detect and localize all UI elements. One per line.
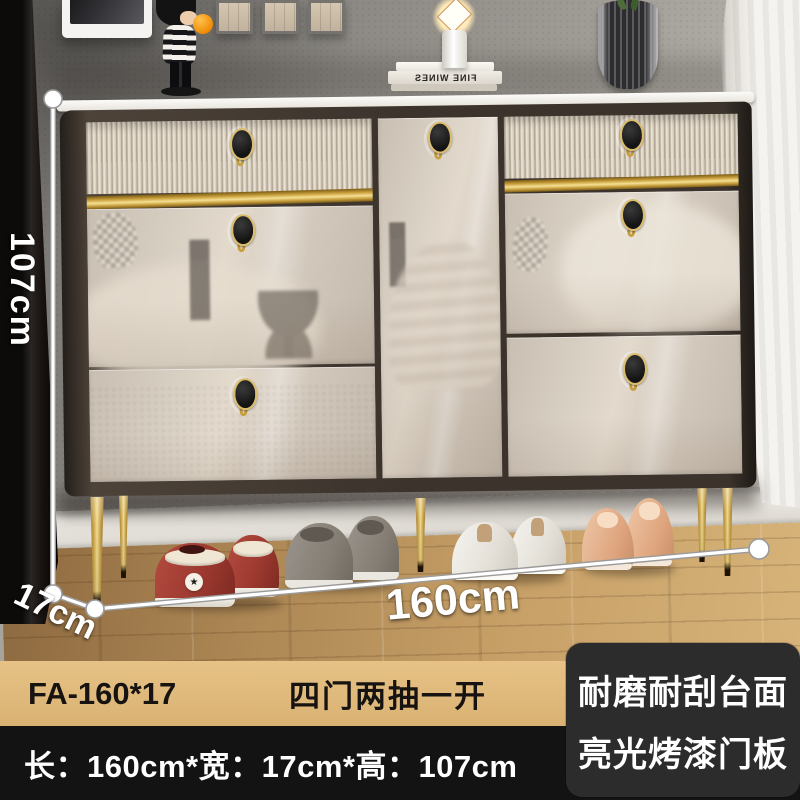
wall-switch-panels	[216, 0, 346, 35]
gray-sneakers	[285, 516, 399, 588]
shoe-cabinet	[59, 91, 756, 496]
handle-ring	[626, 146, 634, 157]
product-image: FINE WINES	[0, 0, 800, 800]
pink-shoes	[582, 498, 676, 572]
vase-leaves	[612, 0, 646, 8]
gray-sneaker	[345, 516, 399, 580]
cabinet-middle-door	[378, 117, 503, 479]
reflection-pillow	[91, 211, 140, 271]
red-sneakers: ★	[155, 535, 283, 607]
reflection-figure	[389, 222, 406, 288]
book: FINE WINES	[388, 71, 502, 84]
cabinet-left-section	[86, 118, 377, 482]
book	[391, 84, 497, 91]
configuration-label: 四门两抽一开	[289, 671, 487, 716]
switch-panel	[308, 0, 345, 34]
reflection-pillow	[511, 216, 551, 273]
middle-door-panel[interactable]	[378, 117, 503, 479]
star-icon: ★	[190, 577, 199, 588]
size-text: 长：160cm*宽：17cm*高：107cm	[24, 741, 517, 786]
handle-ring	[236, 155, 244, 166]
handle-ring	[629, 380, 637, 391]
door-handle[interactable]	[226, 212, 257, 256]
reflection-sofa	[86, 262, 321, 383]
white-sneaker	[510, 516, 566, 574]
figurine-legs	[170, 62, 191, 88]
switch-panel	[216, 0, 253, 34]
handle-ring	[237, 241, 245, 252]
cabinet-right-section	[504, 114, 743, 477]
figurine-base	[161, 87, 201, 96]
reflection-figure	[189, 240, 210, 322]
switch-panel	[262, 0, 299, 34]
reflection-bench	[387, 239, 501, 390]
feature-badge: 耐磨耐刮台面 亮光烤漆门板	[566, 643, 800, 797]
figurine-striped-body	[162, 24, 196, 64]
reflection-table	[240, 290, 337, 359]
model-number: FA-160*17	[28, 676, 176, 712]
lamp-base	[442, 30, 467, 68]
boy-figurine	[150, 0, 214, 97]
orange-ball	[193, 14, 213, 34]
handle-ring	[627, 226, 635, 237]
product-photo: FINE WINES	[0, 0, 800, 661]
reflection-sofa	[561, 201, 743, 331]
door-handle[interactable]	[615, 117, 646, 161]
pink-shoe	[582, 508, 634, 570]
handle-ring	[239, 405, 247, 416]
table-lamp	[430, 0, 478, 68]
feature-line-2: 亮光烤漆门板	[578, 727, 788, 776]
gray-sneaker	[285, 523, 353, 588]
book-spine-text: FINE WINES	[414, 73, 477, 83]
ribbed-vase	[598, 0, 658, 89]
door-handle[interactable]	[618, 351, 649, 395]
door-handle[interactable]	[225, 126, 256, 170]
star-logo: ★	[185, 573, 203, 591]
shoe-opening	[179, 545, 205, 554]
door-handle[interactable]	[423, 119, 454, 163]
height-dimension-label: 107cm	[2, 232, 41, 348]
handle-ring	[434, 149, 442, 160]
feature-line-1: 耐磨耐刮台面	[578, 665, 788, 714]
door-handle[interactable]	[228, 376, 259, 420]
door-handle[interactable]	[616, 197, 647, 241]
wall-monitor	[62, 0, 152, 38]
